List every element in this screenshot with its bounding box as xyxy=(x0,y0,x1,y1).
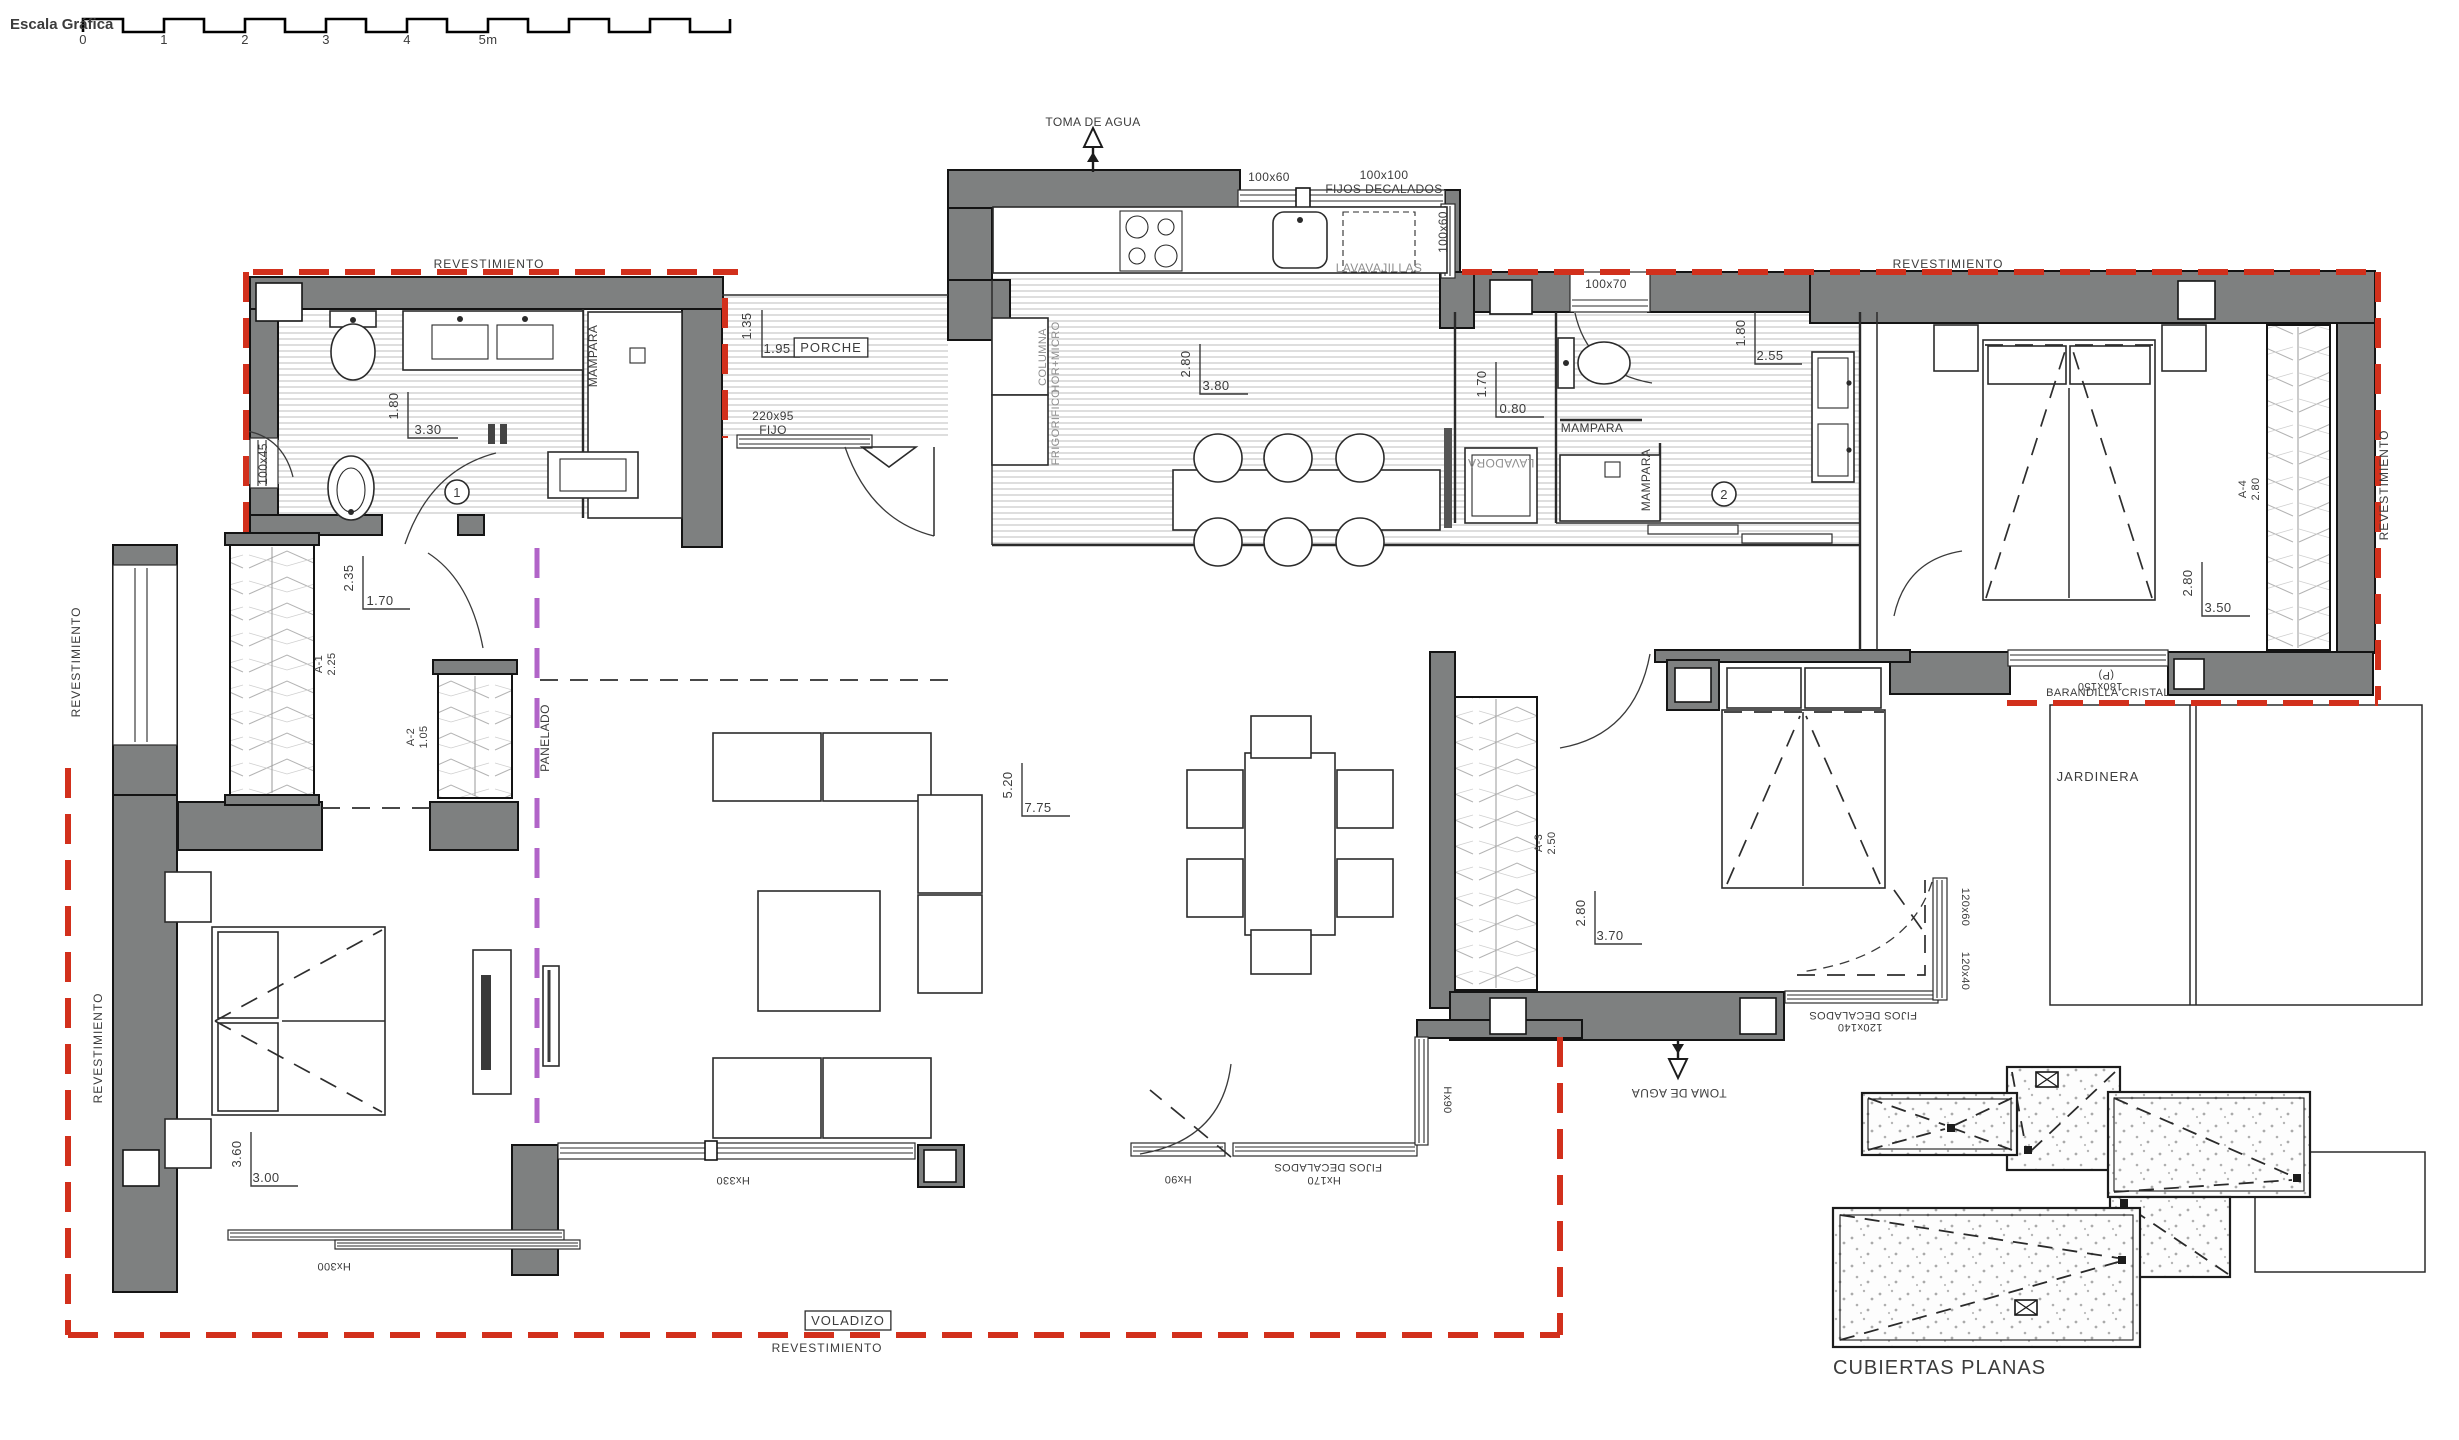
pillow xyxy=(2070,346,2150,384)
label-a4-dim: 2.80 xyxy=(2250,477,2262,500)
label-lavavajillas: LAVAVAJILLAS xyxy=(1336,261,1423,275)
niche-utility xyxy=(1490,280,1532,314)
label-toma-agua-bottom: TOMA DE AGUA xyxy=(1631,1086,1726,1100)
label-win-100x60-right: 100x60 xyxy=(1436,211,1450,253)
niche-master-bottom xyxy=(2174,659,2204,689)
master-wall-top xyxy=(1810,271,2375,323)
label-dim-utility-v: 1.70 xyxy=(1474,371,1489,398)
coffee-table xyxy=(758,891,880,1011)
bed2-sliding-door-a xyxy=(1648,525,1738,534)
label-room-number-1: 1 xyxy=(453,485,461,500)
label-win-100x60-top: 100x60 xyxy=(1248,170,1290,184)
fridge xyxy=(992,395,1048,465)
label-voladizo: VOLADIZO xyxy=(811,1313,885,1328)
faucet-dot xyxy=(1846,447,1851,452)
label-rail-p: (P) xyxy=(2098,669,2114,681)
label-porche: PORCHE xyxy=(800,340,862,355)
entry-door-triangle xyxy=(862,447,916,467)
label-win-hx330: Hx330 xyxy=(716,1174,750,1186)
label-win-hx90-a: Hx90 xyxy=(1164,1173,1191,1185)
label-mampara-bath2-h: MAMPARA xyxy=(1561,421,1624,435)
label-rev-top-left: REVESTIMIENTO xyxy=(434,257,545,271)
label-win-120x60: 120x60 xyxy=(1959,888,1971,927)
label-dim-bed2-v: 2.80 xyxy=(1573,900,1588,927)
label-fijos-decalados-bottom: FIJOS DECALADOS xyxy=(1274,1161,1382,1173)
window-bed2-bottom xyxy=(1785,878,1947,1003)
label-columna: COLUMNA xyxy=(1037,328,1049,386)
label-win-fijo: FIJO xyxy=(759,423,787,437)
tv-console-living xyxy=(543,966,559,1066)
bath1-door-leaf-a xyxy=(488,424,495,444)
label-scale-tick-2: 2 xyxy=(241,32,249,47)
label-dim-bath2-v: 1.80 xyxy=(1733,320,1748,347)
bath2-wall-top xyxy=(1648,272,1812,312)
dining-chair xyxy=(1187,770,1243,828)
label-rev-bottom: REVESTIMIENTO xyxy=(772,1341,883,1355)
window-living-hx90-vertical xyxy=(1415,1037,1428,1145)
label-win-220x95: 220x95 xyxy=(752,409,794,423)
stool xyxy=(1336,518,1384,566)
floor-plan-canvas: Escala Gráfica012345m REVESTIMIENTOREVES… xyxy=(0,0,2459,1440)
toilet2-button xyxy=(1563,360,1569,366)
toilet-bowl xyxy=(331,324,375,380)
label-scale-tick-3: 3 xyxy=(322,32,330,47)
window-porch-fijo xyxy=(737,435,872,448)
pillow xyxy=(1805,668,1881,708)
niche-bed2-pier xyxy=(1675,668,1711,702)
label-escala-grafica: Escala Gráfica xyxy=(10,16,114,33)
label-scale-tick-1: 1 xyxy=(160,32,168,47)
tv-bed3 xyxy=(481,975,491,1070)
niche-bed2-bottom-left xyxy=(1490,998,1526,1034)
roof-e xyxy=(1833,1208,2140,1347)
label-dim-kitchen-h: 3.80 xyxy=(1203,378,1230,393)
dressing-door-arc xyxy=(1894,551,1962,616)
label-rev-right: REVESTIMIENTO xyxy=(2377,430,2391,541)
label-scale-tick-4: 4 xyxy=(403,32,411,47)
mampara-laundry xyxy=(1444,428,1452,528)
bed2-sliding-door-b xyxy=(1742,534,1832,543)
label-dim-porche-h: 1.95 xyxy=(764,341,791,356)
vanity-counter xyxy=(403,311,583,370)
wardrobe-a1-cap-top xyxy=(225,533,319,545)
label-rev-top-right: REVESTIMIENTO xyxy=(1893,257,2004,271)
window-hall-left xyxy=(113,565,177,745)
label-dim-bath1-h: 3.30 xyxy=(415,422,442,437)
label-win-hx300: Hx300 xyxy=(317,1260,351,1272)
sofa-seat xyxy=(918,895,982,993)
label-win-hx170: Hx170 xyxy=(1307,1174,1341,1186)
sofa-seat xyxy=(713,733,821,801)
wardrobe-a2-cap-top xyxy=(433,660,517,674)
label-hor-micro: HOR+MICRO xyxy=(1050,321,1062,392)
faucet-dot xyxy=(1846,380,1851,385)
bed2-corner-arc xyxy=(1800,882,1932,972)
label-frigorifico: FRIGORIFICO xyxy=(1050,389,1062,466)
floor-plan-page: Escala Gráfica012345m REVESTIMIENTOREVES… xyxy=(0,0,2459,1440)
nightstand xyxy=(1934,325,1978,371)
roof-plan xyxy=(1833,1067,2425,1347)
toilet-button xyxy=(350,317,356,323)
bath1-wall-top xyxy=(250,277,723,309)
label-dim-bed2-h: 3.70 xyxy=(1597,928,1624,943)
bed3-wall-se xyxy=(512,1145,558,1275)
living-door-arc xyxy=(1140,1064,1231,1154)
bath1-door-leaf-b xyxy=(500,424,507,444)
label-cubiertas-planas: CUBIERTAS PLANAS xyxy=(1833,1357,2046,1379)
label-a3-dim: 2.50 xyxy=(1546,831,1558,854)
label-dim-living-h: 7.75 xyxy=(1025,800,1052,815)
living-room-furniture xyxy=(543,452,1393,1138)
label-rev-left-lower: REVESTIMIENTO xyxy=(91,993,105,1104)
scale-text-layer: Escala Gráfica012345m xyxy=(10,16,497,47)
label-mampara-bath1: MAMPARA xyxy=(586,325,600,388)
window-living-hx170 xyxy=(1233,1143,1417,1156)
dashed-lines xyxy=(322,680,1928,975)
label-dim-bath2-h: 2.55 xyxy=(1757,348,1784,363)
bed2-door-arc xyxy=(1560,654,1650,748)
label-a1-dim: 2.25 xyxy=(326,652,338,675)
entry-door-arc xyxy=(845,447,934,536)
label-a2-code: A-2 xyxy=(405,728,417,746)
bed3-wall-north-right xyxy=(430,802,518,850)
utility-pier xyxy=(1440,272,1474,328)
label-dim-kitchen-v: 2.80 xyxy=(1178,351,1193,378)
stool xyxy=(1264,434,1312,482)
label-scale-tick-0: 0 xyxy=(79,32,87,47)
label-lavadora: LAVADORA xyxy=(1468,456,1535,470)
niche-west-wall xyxy=(123,1150,159,1186)
nightstand xyxy=(165,872,211,922)
pillow xyxy=(1727,668,1801,708)
jardinera-outline xyxy=(2050,705,2422,1005)
stool xyxy=(1336,434,1384,482)
master-bedroom-furniture xyxy=(1934,325,2330,650)
label-dim-utility-h: 0.80 xyxy=(1500,401,1527,416)
sofa-seat xyxy=(918,795,982,893)
sofa-seat xyxy=(823,733,931,801)
label-win-120x40: 120x40 xyxy=(1959,952,1971,991)
label-a1-code: A-1 xyxy=(313,655,325,673)
dining-chair xyxy=(1187,859,1243,917)
bed2-wall-left xyxy=(1430,652,1455,1008)
master-wall-right xyxy=(2337,323,2375,653)
label-rev-left-upper: REVESTIMIENTO xyxy=(69,607,83,718)
label-dim-hall-v: 2.35 xyxy=(341,565,356,592)
kitchen-wall-left xyxy=(948,208,992,280)
label-dim-bed3-v: 3.60 xyxy=(229,1141,244,1168)
window-living-hx90 xyxy=(1131,1143,1225,1156)
bath1-wall-pier xyxy=(458,515,484,535)
faucet-dot xyxy=(457,316,463,322)
stool xyxy=(1194,518,1242,566)
bed2-diagonal-dashed xyxy=(1894,890,1928,938)
sink-faucet xyxy=(1297,217,1303,223)
label-a3-code: A-3 xyxy=(1533,834,1545,852)
label-dim-bed3-h: 3.00 xyxy=(253,1170,280,1185)
label-toma-agua-top: TOMA DE AGUA xyxy=(1045,115,1140,129)
sofa-seat xyxy=(713,1058,821,1138)
label-mampara-bath2-v: MAMPARA xyxy=(1639,449,1653,512)
wardrobe-a1-cap-bottom xyxy=(225,795,319,805)
label-dim-living-v: 5.20 xyxy=(1000,772,1015,799)
label-a2-dim: 1.05 xyxy=(418,725,430,748)
nightstand xyxy=(2162,325,2206,371)
label-a4-code: A-4 xyxy=(2237,480,2249,498)
label-scale-tick-5: 5m xyxy=(479,32,498,47)
scale-bar-steps xyxy=(83,19,730,32)
label-dim-master-v: 2.80 xyxy=(2180,570,2195,597)
dining-chair xyxy=(1337,859,1393,917)
dining-table xyxy=(1245,753,1335,935)
stool xyxy=(1194,434,1242,482)
label-win-120x140: 120x140 xyxy=(1837,1021,1882,1033)
dining-chair xyxy=(1251,930,1311,974)
label-fijos-decalados-top: FIJOS DECALADOS xyxy=(1325,182,1442,196)
label-dim-master-h: 3.50 xyxy=(2205,600,2232,615)
faucet-dot xyxy=(522,316,528,322)
niche-bed2-bottom-right xyxy=(1740,998,1776,1034)
bath1-wall-left-upper xyxy=(250,309,278,439)
niche-bath1 xyxy=(256,283,302,321)
label-barandilla: BARANDILLA CRISTAL xyxy=(2046,687,2170,699)
window-mullion xyxy=(1296,188,1310,208)
label-fijos-decalados-right: FIJOS DECALADOS xyxy=(1809,1009,1917,1021)
label-win-100x70: 100x70 xyxy=(1585,277,1627,291)
dining-chair xyxy=(1337,770,1393,828)
nightstand xyxy=(165,1119,211,1168)
label-dim-bath1-v: 1.80 xyxy=(386,393,401,420)
scale-bar xyxy=(83,19,730,32)
toma-agua-arrow-top xyxy=(1084,128,1102,172)
bath1-wall-right xyxy=(682,309,722,547)
window-bed3-sliding xyxy=(228,1230,580,1249)
label-win-100x45: 100x45 xyxy=(256,443,270,485)
pillow xyxy=(218,932,278,1018)
bedroom3-furniture xyxy=(165,872,511,1168)
label-win-100x100: 100x100 xyxy=(1360,168,1409,182)
niche-master-top xyxy=(2178,281,2215,319)
pillow xyxy=(1988,346,2066,384)
bidet-drain xyxy=(348,509,354,515)
window-master-railing xyxy=(2008,650,2168,666)
toilet2-bowl xyxy=(1578,342,1630,384)
kitchen-wall-top xyxy=(948,170,1240,208)
sofa-seat xyxy=(823,1058,931,1138)
pillow xyxy=(218,1023,278,1111)
stool xyxy=(1264,518,1312,566)
label-dim-porche-v: 1.35 xyxy=(739,313,754,340)
hall-door-arc xyxy=(428,553,483,648)
bed3-wall-north-left xyxy=(178,802,322,850)
toma-agua-arrow-bottom xyxy=(1669,1040,1687,1078)
roof-a xyxy=(2007,1067,2120,1170)
niche-living-pier xyxy=(924,1150,956,1182)
window-living-hx330 xyxy=(558,1141,915,1160)
label-jardinera: JARDINERA xyxy=(2057,769,2140,784)
label-room-number-2: 2 xyxy=(1720,487,1728,502)
dining-chair xyxy=(1251,716,1311,758)
west-wall-lower xyxy=(113,795,177,1292)
tv-bench-bed3 xyxy=(473,950,511,1094)
label-panelado: PANELADO xyxy=(538,704,552,772)
label-dim-hall-h: 1.70 xyxy=(367,593,394,608)
bedroom2-furniture xyxy=(1455,668,1885,990)
label-win-hx90-b: Hx90 xyxy=(1441,1086,1453,1113)
